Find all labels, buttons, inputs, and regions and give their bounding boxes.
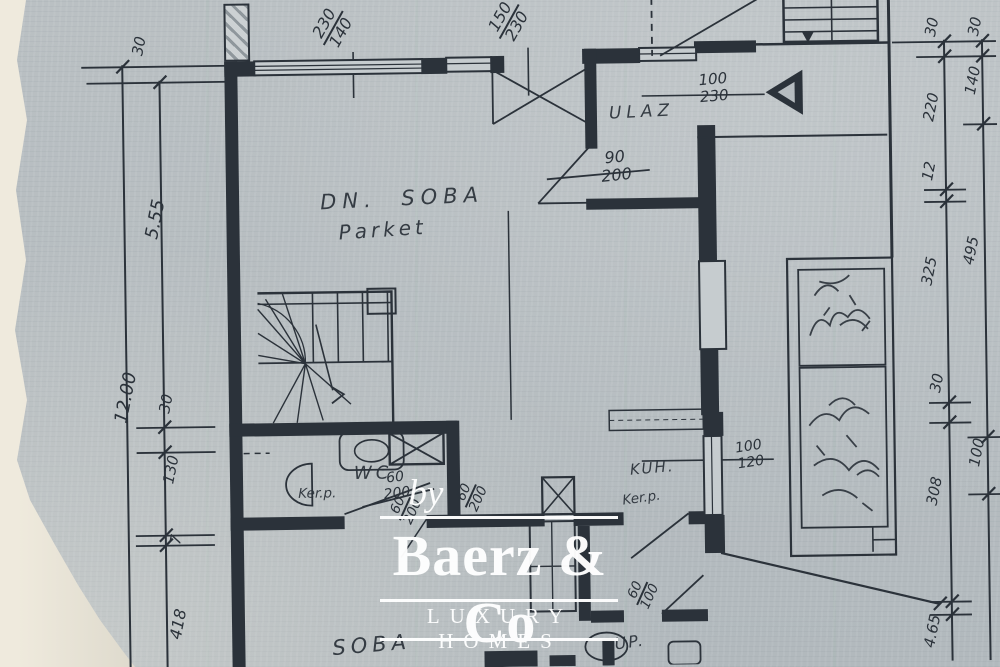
watermark-tagline: LUXURY HOMES — [366, 604, 634, 654]
watermark-by: by — [396, 472, 456, 515]
watermark-rule-bottom — [380, 638, 618, 641]
scanned-floor-plan: DN. SOBA Parket ULAZ WC Ker.p. KUH. Ker.… — [0, 0, 1000, 667]
watermark-rule-top — [380, 516, 618, 519]
watermark-rule-middle — [380, 599, 618, 602]
watermark: by Baerz & Co LUXURY HOMES — [0, 0, 1000, 667]
